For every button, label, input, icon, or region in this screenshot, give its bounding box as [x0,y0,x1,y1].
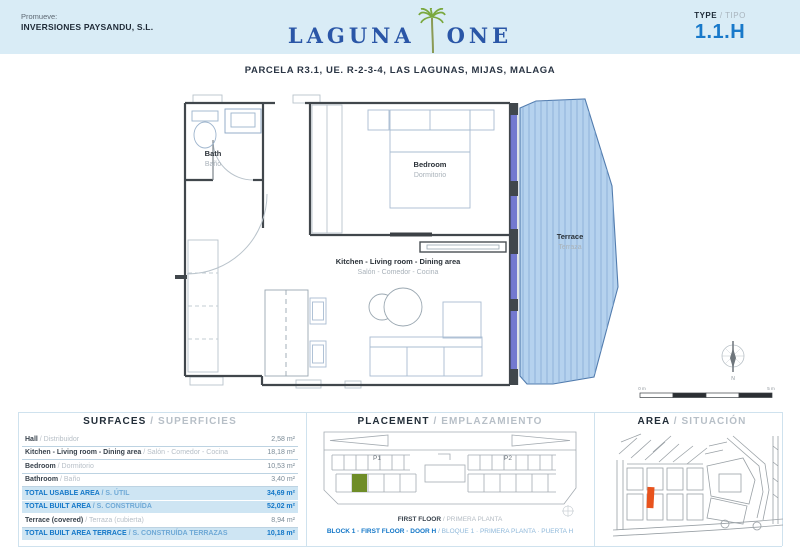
surface-row: Hall / Distribuidor 2,58 m² [22,433,298,447]
surface-row: Terrace (covered) / Terraza (cubierta) 8… [22,514,298,528]
logo-word-laguna: LAGUNA [288,25,415,52]
svg-text:N: N [731,376,735,382]
p1-label: P1 [373,455,381,462]
panel-divider-mid2 [594,412,595,546]
svg-text:0 m: 0 m [638,386,646,391]
placement-diagram: P1 P2 [318,426,582,518]
wall-stub [175,275,187,279]
surface-row: Kitchen - Living room - Dining area / Sa… [22,447,298,461]
panel-divider-top [18,412,782,413]
header-bar: Promueve: INVERSIONES PAYSANDU, S.L. LAG… [0,0,800,54]
walls [185,103,510,385]
surface-row-total-terrace: TOTAL BUILT AREA TERRACE / S. CONSTRUÍDA… [22,528,298,542]
floor-plan: N 0 m 5 m [165,86,790,412]
parcel-subtitle: PARCELA R3.1, UE. R-2-3-4, LAS LAGUNAS, … [0,65,800,76]
living-furniture [188,240,506,376]
door-arcs [187,140,267,274]
floor-caption: FIRST FLOOR / PRIMERA PLANTA [318,516,582,523]
type-badge: TYPE / TIPO 1.1.H [670,11,770,44]
area-title: AREA / SITUACIÓN [597,416,787,427]
sliding-door [390,233,432,237]
surface-row: Bathroom / Baño 3,40 m² [22,474,298,488]
type-label: TYPE / TIPO [670,11,770,20]
surfaces-title: SURFACES / SUPERFICIES [22,416,298,427]
type-value: 1.1.H [670,21,770,44]
p2-label: P2 [504,455,512,462]
svg-text:5 m: 5 m [767,386,775,391]
logo-word-one: ONE [447,25,513,52]
bedroom-furniture [312,105,494,233]
highlighted-unit [352,474,367,492]
unit-caption: BLOCK 1 · FIRST FLOOR · DOOR H / BLOQUE … [306,528,594,535]
palm-tree-icon [418,8,446,54]
terrace-area [520,94,618,391]
surface-row-total-built: TOTAL BUILT AREA / S. CONSTRUÍDA 52,02 m… [22,501,298,515]
compass-icon: N [722,341,744,382]
surface-row-total-usable: TOTAL USABLE AREA / S. ÚTIL 34,69 m² [22,487,298,501]
panel-divider-mid1 [306,412,307,546]
surface-row: Bedroom / Dormitorio 10,53 m² [22,460,298,474]
location-map [607,432,787,544]
surfaces-table: Hall / Distribuidor 2,58 m² Kitchen - Li… [22,433,298,541]
panel-divider-left [18,412,19,546]
panel-divider-bottom [18,546,782,547]
bath-fixtures [192,109,261,148]
highlighted-parcel [646,487,654,508]
scale-bar: 0 m 5 m [638,386,775,398]
